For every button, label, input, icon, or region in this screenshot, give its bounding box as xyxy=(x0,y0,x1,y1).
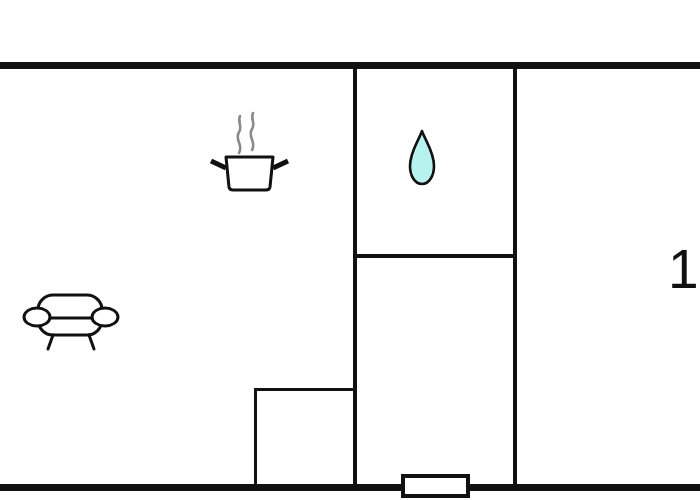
water-drop-icon xyxy=(407,128,437,188)
interior-wall-bath-divider xyxy=(353,254,517,258)
steam-icon xyxy=(238,113,254,153)
room1-label: 1 xyxy=(668,242,699,297)
closet-wall-horizontal xyxy=(254,388,357,391)
closet-wall-vertical xyxy=(254,388,257,488)
interior-wall-left-vertical xyxy=(353,62,357,491)
sofa-icon xyxy=(20,290,120,352)
interior-wall-right-vertical xyxy=(513,62,517,491)
cooking-pot-icon xyxy=(203,108,297,194)
floorplan-canvas: 1 xyxy=(0,0,700,500)
entrance-door xyxy=(401,474,470,498)
exterior-wall-top xyxy=(0,62,700,69)
exterior-wall-bottom xyxy=(0,484,700,491)
